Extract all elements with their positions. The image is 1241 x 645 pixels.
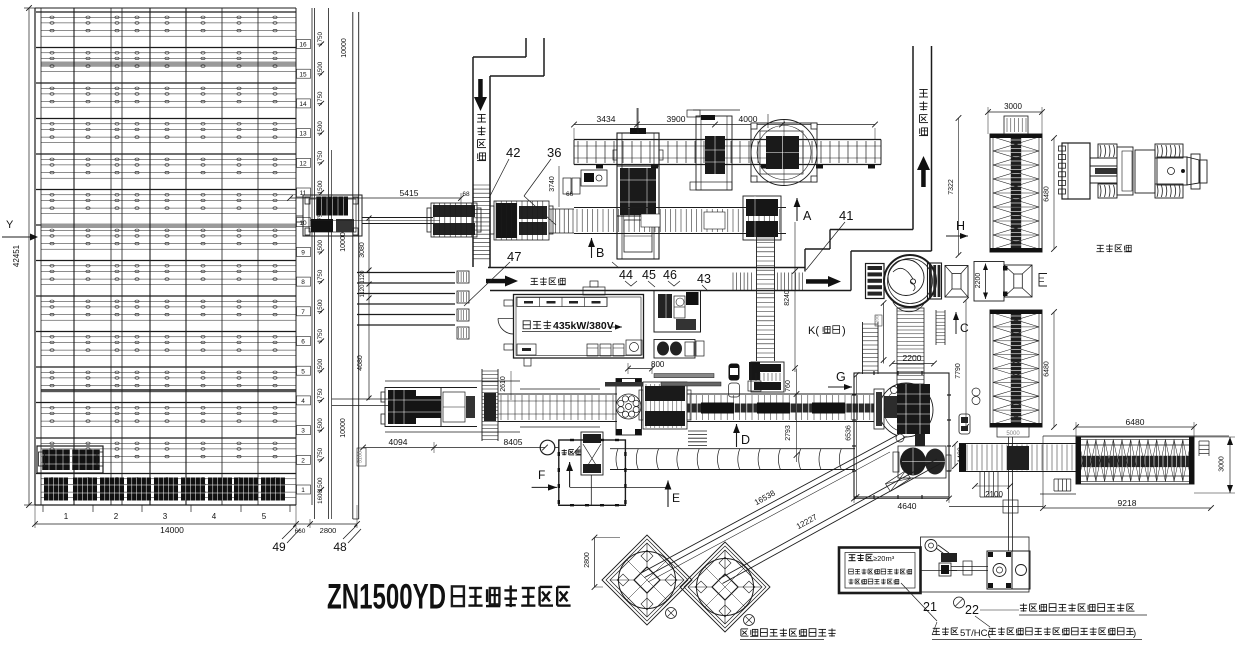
svg-text:5100: 5100	[875, 315, 880, 326]
svg-text:1750: 1750	[317, 388, 324, 402]
svg-text:4000: 4000	[739, 114, 758, 124]
svg-text:4680: 4680	[357, 355, 364, 371]
svg-text:42451: 42451	[12, 244, 21, 267]
svg-text:5100: 5100	[358, 451, 364, 463]
svg-text:2793: 2793	[785, 425, 792, 441]
svg-text:6480: 6480	[1044, 361, 1051, 377]
svg-text:3080: 3080	[359, 242, 366, 258]
svg-text:7: 7	[301, 309, 305, 316]
svg-text:14: 14	[299, 101, 307, 108]
svg-text:1500: 1500	[317, 239, 324, 253]
svg-text:15: 15	[299, 71, 307, 78]
svg-text:): )	[1133, 628, 1136, 639]
svg-text:6480: 6480	[1126, 417, 1145, 427]
svg-text:21: 21	[923, 600, 937, 614]
svg-text:9: 9	[301, 250, 305, 257]
svg-text:1500: 1500	[317, 180, 324, 194]
svg-text:E: E	[672, 491, 680, 505]
svg-text:1500: 1500	[317, 358, 324, 372]
svg-text:8405: 8405	[504, 437, 523, 447]
svg-text:1750: 1750	[317, 150, 324, 164]
svg-text:K(: K(	[808, 325, 819, 337]
svg-text:16: 16	[299, 42, 307, 49]
svg-text:5: 5	[262, 512, 267, 521]
svg-text:1500: 1500	[317, 477, 324, 491]
svg-text:A: A	[803, 209, 812, 223]
svg-text:7790: 7790	[955, 363, 962, 379]
svg-text:7322: 7322	[948, 179, 955, 195]
svg-text:10000: 10000	[341, 38, 348, 58]
svg-text:1500: 1500	[317, 418, 324, 432]
svg-text:13: 13	[299, 131, 307, 138]
svg-text:435kW/380V: 435kW/380V	[553, 320, 614, 332]
svg-text:1400: 1400	[958, 447, 965, 463]
svg-text:6480: 6480	[1044, 186, 1051, 202]
svg-text:2200: 2200	[975, 273, 982, 289]
svg-text:2800: 2800	[584, 552, 591, 568]
svg-text:8: 8	[301, 279, 305, 286]
svg-text:5415: 5415	[400, 188, 419, 198]
svg-text:ZN1500YD: ZN1500YD	[327, 578, 446, 617]
svg-text:1750: 1750	[317, 32, 324, 46]
svg-text:760: 760	[785, 380, 792, 392]
svg-text:3000: 3000	[1219, 456, 1226, 472]
svg-text:36: 36	[547, 145, 561, 160]
svg-text:3: 3	[163, 512, 168, 521]
svg-text:2610: 2610	[500, 376, 507, 392]
svg-text:45: 45	[642, 268, 656, 282]
svg-text:Y: Y	[6, 219, 14, 231]
svg-text:46: 46	[663, 268, 677, 282]
svg-text:4: 4	[212, 512, 217, 521]
svg-text:2200: 2200	[903, 353, 922, 363]
svg-text:5T/HC(: 5T/HC(	[960, 628, 991, 639]
svg-text:1750: 1750	[317, 329, 324, 343]
svg-text:4: 4	[301, 398, 305, 405]
svg-text:G: G	[836, 370, 846, 384]
svg-text:4094: 4094	[389, 437, 408, 447]
svg-text:1120: 1120	[360, 284, 366, 298]
svg-text:10000: 10000	[340, 232, 347, 252]
svg-text:1: 1	[301, 487, 305, 494]
svg-text:1500: 1500	[317, 121, 324, 135]
svg-text:660: 660	[295, 528, 306, 535]
svg-text:1750: 1750	[317, 447, 324, 461]
svg-text:3000: 3000	[1004, 102, 1022, 111]
svg-text:4640: 4640	[898, 501, 917, 511]
svg-text:3434: 3434	[597, 114, 616, 124]
svg-text:22: 22	[965, 603, 979, 617]
svg-text:14000: 14000	[160, 525, 184, 535]
svg-text:66: 66	[566, 191, 574, 198]
svg-text:B: B	[596, 246, 604, 260]
svg-text:48: 48	[333, 540, 347, 554]
svg-text:44: 44	[619, 268, 633, 282]
svg-text:5: 5	[301, 368, 305, 375]
svg-text:68: 68	[462, 191, 470, 198]
svg-text:F: F	[538, 468, 545, 482]
svg-text:9218: 9218	[1118, 498, 1137, 508]
svg-text:3740: 3740	[549, 176, 556, 192]
svg-text:43: 43	[697, 272, 711, 286]
svg-text:47: 47	[507, 249, 521, 264]
svg-text:1: 1	[64, 512, 69, 521]
svg-text:41: 41	[839, 208, 853, 223]
svg-text:10000: 10000	[340, 418, 347, 438]
svg-text:2: 2	[301, 457, 305, 464]
svg-text:H: H	[956, 219, 965, 233]
svg-text:1600: 1600	[317, 490, 324, 504]
svg-text:1750: 1750	[317, 91, 324, 105]
svg-text:1500: 1500	[317, 299, 324, 313]
svg-text:6: 6	[301, 339, 305, 346]
svg-text:2800: 2800	[320, 526, 337, 535]
svg-text:5000: 5000	[1006, 431, 1020, 437]
svg-text:12: 12	[299, 160, 307, 167]
svg-text:3: 3	[301, 428, 305, 435]
svg-text:≥20m³: ≥20m³	[873, 554, 895, 563]
svg-text:42: 42	[506, 145, 520, 160]
svg-text:C: C	[960, 321, 969, 335]
svg-text:): )	[842, 325, 846, 337]
svg-text:8240: 8240	[784, 290, 791, 306]
svg-text:800: 800	[651, 360, 665, 369]
svg-text:6536: 6536	[846, 425, 853, 441]
svg-text:1750: 1750	[317, 269, 324, 283]
svg-text:2100: 2100	[985, 490, 1003, 499]
svg-text:2: 2	[114, 512, 119, 521]
svg-text:D: D	[741, 433, 750, 447]
svg-text:3900: 3900	[667, 114, 686, 124]
svg-text:49: 49	[272, 540, 286, 554]
svg-text:1500: 1500	[317, 61, 324, 75]
